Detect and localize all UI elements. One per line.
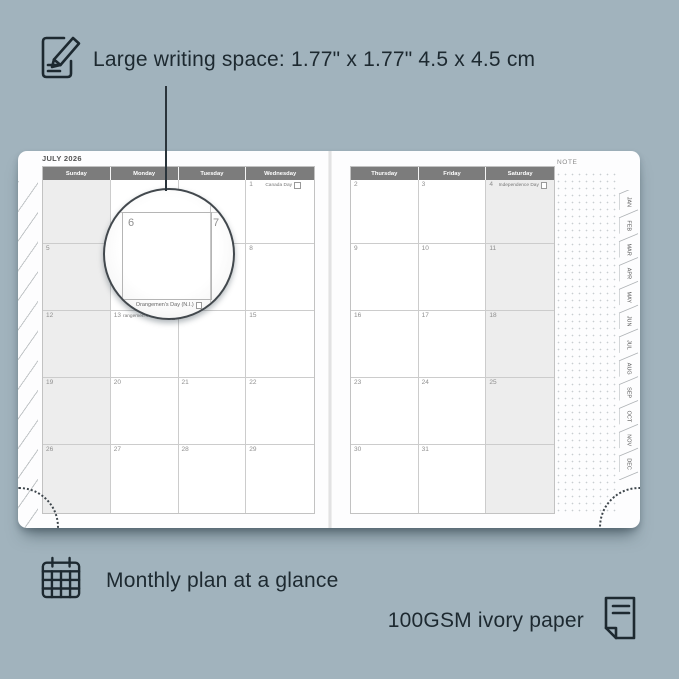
- holiday-checkbox: [196, 302, 203, 309]
- cell-date: 9: [354, 246, 358, 253]
- cell-date: 31: [422, 447, 429, 454]
- cell-date: 16: [354, 313, 361, 320]
- calendar-cell: 22: [246, 378, 314, 445]
- pointer-line: [165, 86, 167, 191]
- calendar-cell: 5: [43, 244, 111, 311]
- cell-date: 29: [249, 447, 256, 454]
- top-annotation: Large writing space: 1.77" x 1.77" 4.5 x…: [36, 32, 535, 87]
- day-header: Monday: [111, 167, 179, 180]
- calendar-cell: [486, 445, 554, 513]
- month-tab-label: JUN: [626, 316, 632, 327]
- calendar-cell: [43, 180, 111, 244]
- calendar-cell: 20: [111, 378, 179, 445]
- cell-date: 22: [249, 380, 256, 387]
- calendar-cell: 23: [351, 378, 419, 445]
- cell-date: 1: [249, 182, 253, 189]
- center-fold: [328, 151, 332, 528]
- day-header: Sunday: [43, 167, 111, 180]
- calendar-cell: 10: [419, 244, 487, 311]
- calendar-cell: 15: [246, 311, 314, 378]
- calendar-cell: 16: [351, 311, 419, 378]
- cell-date: 11: [489, 246, 496, 253]
- cell-date: 18: [489, 313, 496, 320]
- note-dot-grid: [555, 171, 619, 515]
- holiday-label: Canada Day: [255, 182, 311, 189]
- day-header: Tuesday: [179, 167, 247, 180]
- calendar-cell: 31: [419, 445, 487, 513]
- month-tab-label: MAR: [626, 243, 632, 255]
- month-tab-label: SEP: [626, 387, 632, 398]
- product-image-canvas: Large writing space: 1.77" x 1.77" 4.5 x…: [0, 0, 679, 679]
- calendar-cell: 11: [486, 244, 554, 311]
- calendar-cell: 30: [351, 445, 419, 513]
- right-month-grid: ThursdayFridaySaturday234Independence Da…: [350, 166, 555, 514]
- calendar-cell: 13Orangemen's Day (N.I.): [111, 311, 179, 378]
- calendar-cell: 28: [179, 445, 247, 513]
- cell-date: 24: [422, 380, 429, 387]
- cell-date: 23: [354, 380, 361, 387]
- holiday-checkbox: [541, 182, 548, 189]
- cell-date: 20: [114, 380, 121, 387]
- month-title: JULY 2026: [42, 154, 82, 163]
- month-tab-label: OCT: [626, 411, 632, 423]
- note-label: NOTE: [557, 159, 577, 166]
- calendar-cell: 14: [179, 311, 247, 378]
- calendar-cell: 25: [486, 378, 554, 445]
- magnified-date: 6: [128, 217, 134, 229]
- calendar-cell: 8: [246, 244, 314, 311]
- month-tab-label: FEB: [626, 220, 632, 231]
- month-tabs: JANFEBMARAPRMAYJUNJULAUGSEPOCTNOVDEC: [618, 190, 640, 480]
- calendar-cell: 1Canada Day: [246, 180, 314, 244]
- month-tab-label: JAN: [626, 197, 632, 207]
- magnified-adjacent-date: 7: [213, 217, 219, 229]
- day-header: Saturday: [486, 167, 554, 180]
- magnified-writing-cell: [122, 212, 212, 300]
- cell-date: 12: [46, 313, 53, 320]
- calendar-cell: 3: [419, 180, 487, 244]
- cell-date: 28: [182, 447, 189, 454]
- pencil-note-icon: [36, 32, 82, 87]
- calendar-cell: 9: [351, 244, 419, 311]
- magnifier-caption: Orangemen's Day (N.I.): [105, 302, 233, 309]
- cell-date: 8: [249, 246, 253, 253]
- calendar-cell: 19: [43, 378, 111, 445]
- cell-date: 26: [46, 447, 53, 454]
- month-tab-label: APR: [626, 268, 632, 279]
- day-header: Wednesday: [246, 167, 314, 180]
- cell-date: 27: [114, 447, 121, 454]
- calendar-cell: 21: [179, 378, 247, 445]
- cell-date: 17: [422, 313, 429, 320]
- month-tab-label: JUL: [626, 340, 632, 350]
- magnifier-circle: 6 7 Orangemen's Day (N.I.): [103, 188, 235, 320]
- writing-space-text: Large writing space: 1.77" x 1.77" 4.5 x…: [93, 48, 535, 72]
- holiday-checkbox: [294, 182, 301, 189]
- calendar-cell: 29: [246, 445, 314, 513]
- cell-date: 3: [422, 182, 426, 189]
- cell-date: 30: [354, 447, 361, 454]
- cell-date: 5: [46, 246, 50, 253]
- cell-date: 4: [489, 182, 493, 189]
- cell-date: 2: [354, 182, 358, 189]
- monthly-plan-text: Monthly plan at a glance: [106, 569, 338, 593]
- cell-date: 15: [249, 313, 256, 320]
- calendar-grid-icon: [40, 556, 82, 605]
- calendar-cell: 26: [43, 445, 111, 513]
- calendar-cell: 2: [351, 180, 419, 244]
- calendar-cell: 27: [111, 445, 179, 513]
- calendar-cell: 17: [419, 311, 487, 378]
- ivory-paper-text: 100GSM ivory paper: [388, 609, 584, 633]
- bottom-right-annotation: 100GSM ivory paper: [388, 594, 640, 647]
- cell-date: 10: [422, 246, 429, 253]
- paper-sheet-icon: [600, 594, 640, 647]
- cell-date: 19: [46, 380, 53, 387]
- cell-date: 13: [114, 313, 121, 320]
- planner-spread: JULY 2026 SundayMondayTuesdayWednesday1C…: [18, 151, 640, 528]
- day-header: Thursday: [351, 167, 419, 180]
- day-header: Friday: [419, 167, 487, 180]
- calendar-cell: 24: [419, 378, 487, 445]
- holiday-label: Independence Day: [495, 182, 551, 189]
- cell-date: 25: [489, 380, 496, 387]
- bottom-left-annotation: Monthly plan at a glance: [40, 556, 338, 605]
- calendar-cell: 18: [486, 311, 554, 378]
- month-tab-label: AUG: [626, 363, 632, 375]
- month-tab-label: NOV: [626, 434, 632, 446]
- cell-date: 21: [182, 380, 189, 387]
- month-tab-label: DEC: [626, 458, 632, 470]
- page-edge-hatching: [18, 181, 38, 528]
- calendar-cell: 12: [43, 311, 111, 378]
- month-tab-label: MAY: [626, 291, 632, 303]
- calendar-cell: 4Independence Day: [486, 180, 554, 244]
